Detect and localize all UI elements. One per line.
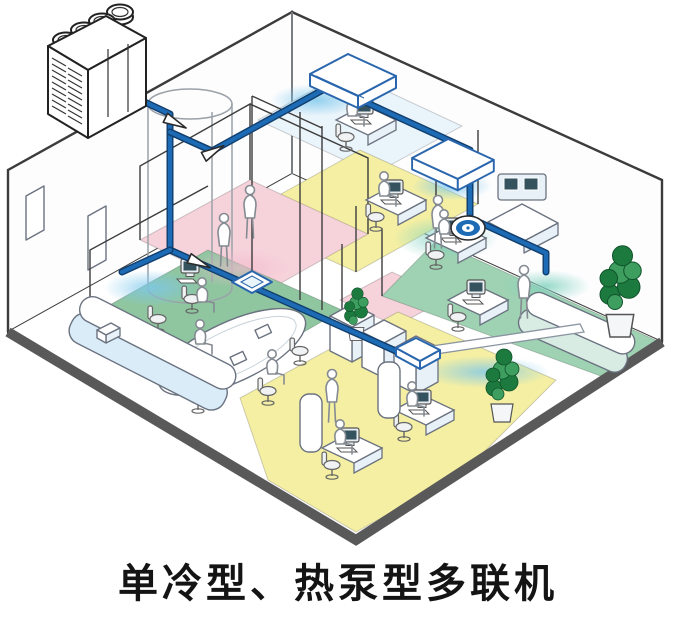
air-glow — [422, 356, 550, 388]
vrf-office-illustration — [0, 0, 676, 632]
divider-panel — [378, 362, 400, 418]
caption: 单冷型、热泵型多联机 — [0, 551, 676, 609]
wall-frame — [26, 186, 44, 240]
round-cassette-unit — [451, 216, 485, 240]
divider-panel — [300, 394, 322, 452]
illustration-canvas: 单冷型、热泵型多联机 — [0, 0, 676, 632]
